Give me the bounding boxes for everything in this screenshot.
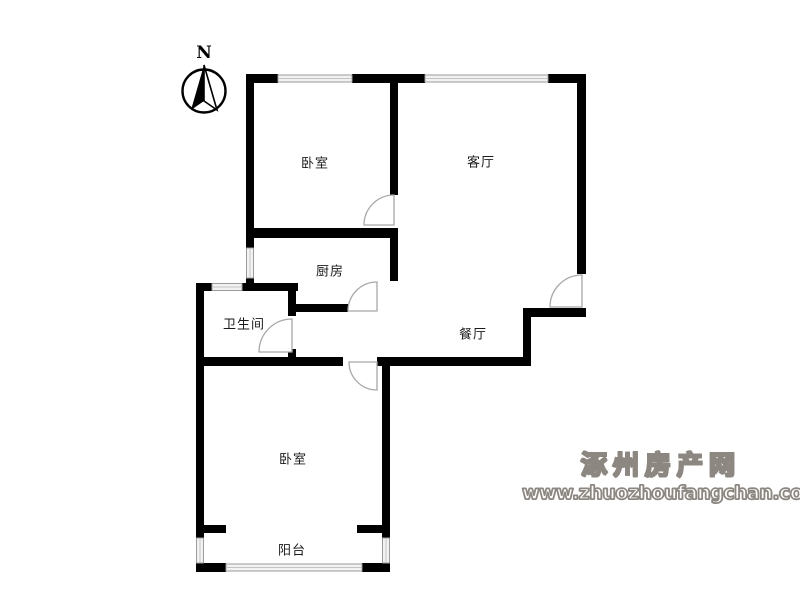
room-label-kitchen: 厨房 <box>316 261 344 280</box>
wall-segment <box>196 563 226 572</box>
wall-segment <box>196 283 204 538</box>
floor-plan-page: N 卧室 客厅 厨房 卫生间 餐厅 卧室 阳台 涿州房产网 www.zhuozh… <box>0 0 800 600</box>
wall-segment <box>246 228 398 238</box>
room-label-dining-room: 餐厅 <box>459 324 487 343</box>
window-balcony-left <box>197 538 204 563</box>
window-left-wall <box>247 248 254 278</box>
wall-segment <box>377 357 531 366</box>
wall-segment <box>288 283 296 316</box>
wall-segment <box>288 304 348 312</box>
floor-plan-drawing <box>0 0 800 600</box>
watermark-site-url: www.zhuozhoufangchan.com <box>522 483 800 504</box>
watermark: 涿州房产网 www.zhuozhoufangchan.com <box>522 452 800 503</box>
north-label: N <box>196 43 212 63</box>
wall-segment <box>352 74 425 83</box>
wall-segment <box>357 525 390 533</box>
door-arc-bedroom-bottom <box>349 362 377 390</box>
door-arc-entry <box>550 275 582 307</box>
window-living-room <box>425 75 548 82</box>
wall-segment <box>362 563 390 572</box>
room-label-bedroom-bottom: 卧室 <box>279 449 307 468</box>
wall-segment <box>196 357 343 366</box>
room-label-living-room: 客厅 <box>467 152 495 171</box>
wall-segment <box>577 74 586 274</box>
door-arc-kitchen <box>348 282 377 311</box>
room-label-bedroom-top: 卧室 <box>301 153 329 172</box>
room-label-balcony: 阳台 <box>278 540 306 559</box>
room-label-bathroom: 卫生间 <box>223 314 265 333</box>
door-arc-bedroom-top <box>364 195 394 225</box>
wall-segment <box>523 308 586 317</box>
wall-segment <box>390 238 398 281</box>
window-bedroom-top <box>278 75 352 82</box>
wall-segment <box>390 74 398 195</box>
wall-segment <box>246 74 254 248</box>
watermark-site-name: 涿州房产网 <box>522 452 800 481</box>
wall-segment <box>382 357 390 538</box>
north-arrow-icon <box>183 65 226 113</box>
wall-segment <box>196 525 226 533</box>
window-balcony-bottom <box>226 564 362 571</box>
window-bathroom <box>212 284 242 291</box>
window-balcony-right <box>383 538 390 563</box>
